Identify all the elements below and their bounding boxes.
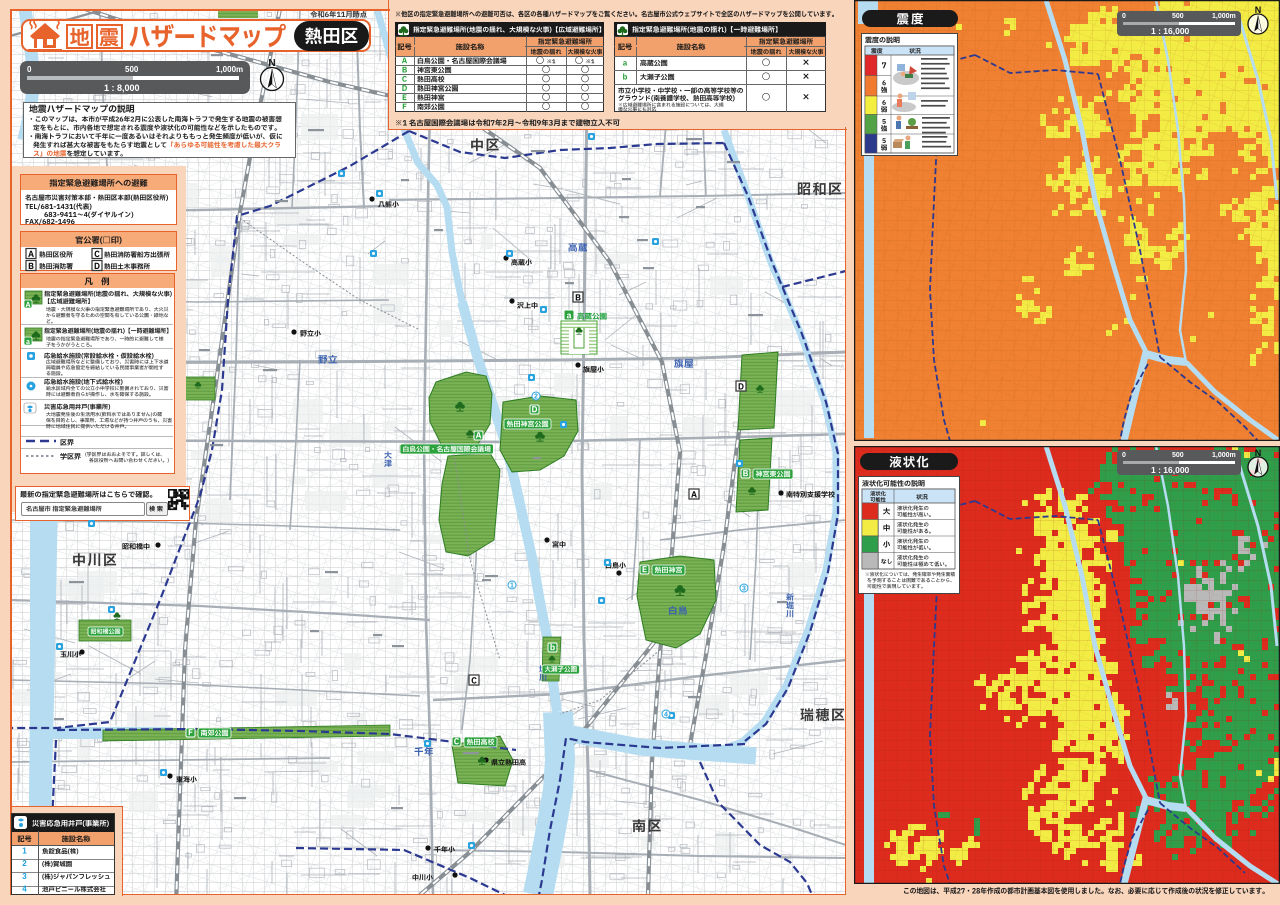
svg-text:N: N <box>1255 448 1262 458</box>
svg-text:4: 4 <box>22 885 27 894</box>
svg-text:1: 1 <box>22 847 27 856</box>
svg-text:2: 2 <box>22 859 27 868</box>
svg-text:1: 1 <box>510 583 514 590</box>
svg-text:3: 3 <box>742 586 746 593</box>
svg-text:2: 2 <box>534 394 538 401</box>
svg-text:4: 4 <box>664 712 668 719</box>
svg-text:N: N <box>1255 5 1262 15</box>
svg-text:3: 3 <box>22 872 27 881</box>
svg-text:N: N <box>268 58 275 69</box>
